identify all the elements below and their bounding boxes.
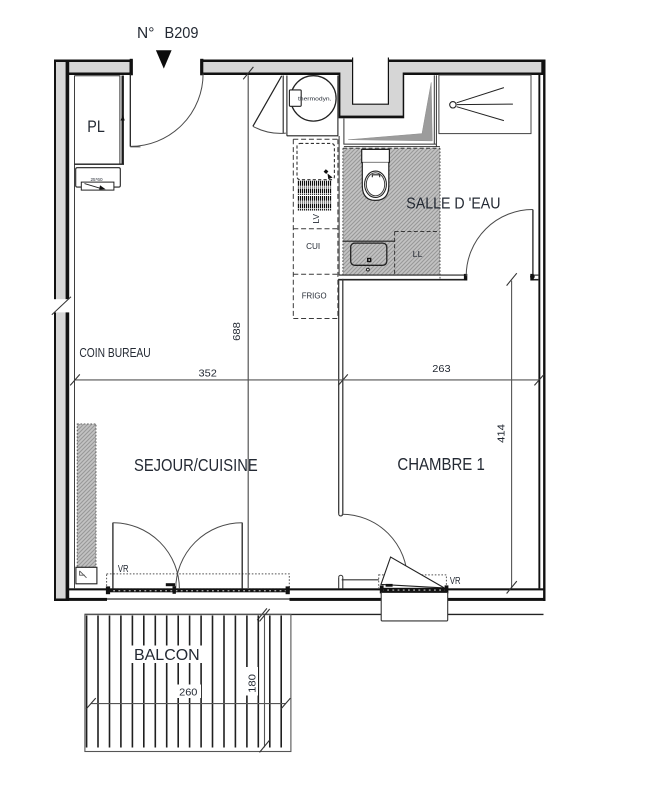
svg-text:VR: VR [118,564,129,575]
svg-text:CUI: CUI [306,241,320,251]
svg-text:260: 260 [179,687,198,698]
svg-text:352: 352 [199,368,218,379]
svg-text:180: 180 [247,674,258,693]
svg-text:414: 414 [496,424,507,443]
svg-text:LL: LL [413,249,423,259]
svg-text:688: 688 [232,322,243,341]
svg-text:SEJOUR/CUISINE: SEJOUR/CUISINE [134,455,258,475]
svg-text:VR: VR [450,576,461,587]
svg-text:CHAMBRE 1: CHAMBRE 1 [397,454,484,474]
svg-text:COIN BUREAU: COIN BUREAU [79,345,150,360]
svg-text:B209: B209 [165,25,199,42]
svg-text:thermodyn.: thermodyn. [298,96,332,102]
svg-text:BALCON: BALCON [134,647,200,664]
svg-text:LV: LV [312,213,321,223]
svg-text:263: 263 [432,364,451,375]
svg-text:SALLE D 'EAU: SALLE D 'EAU [406,195,500,212]
svg-text:25*60: 25*60 [91,177,103,182]
svg-text:N°: N° [137,25,154,42]
svg-text:FRIGO: FRIGO [302,291,327,301]
svg-text:PL: PL [87,118,105,136]
